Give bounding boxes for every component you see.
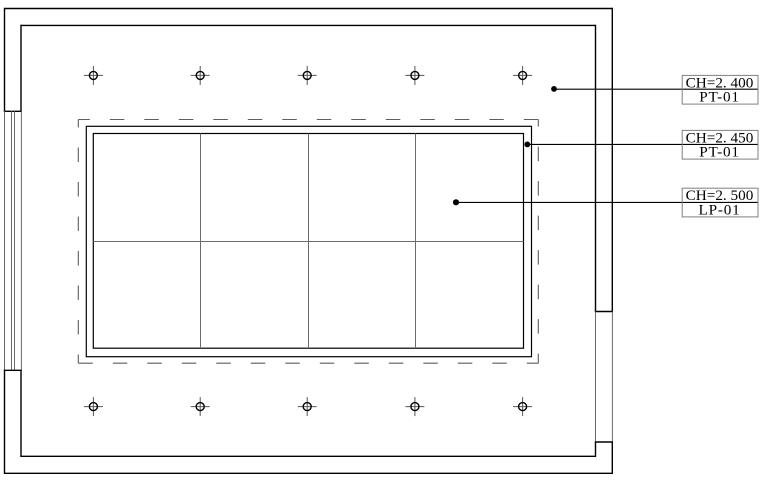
svg-text:PT-01: PT-01 [699,89,740,106]
svg-text:PT-01: PT-01 [699,144,740,161]
svg-text:LP-01: LP-01 [699,201,741,218]
